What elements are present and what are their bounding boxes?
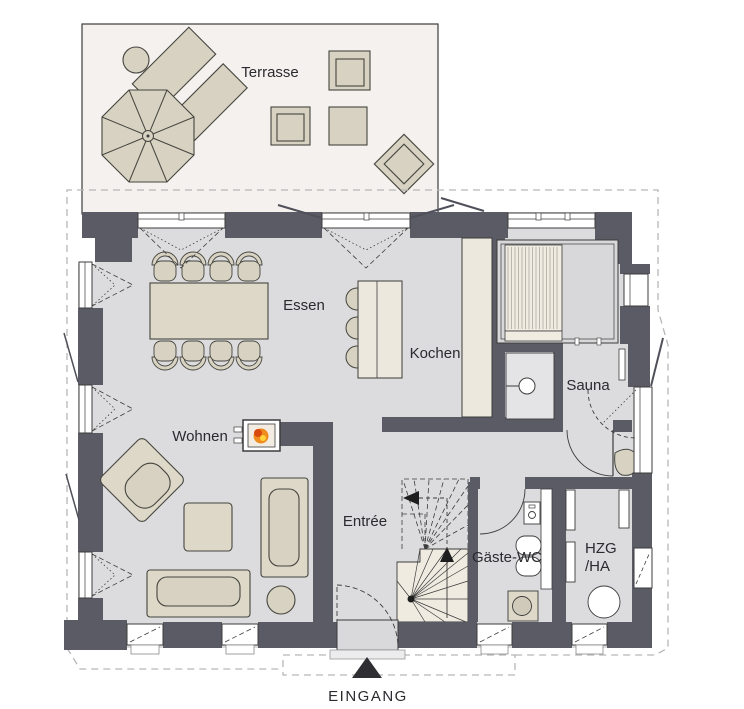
- entrance-step: [330, 650, 405, 659]
- window-bottom-2: [222, 624, 258, 654]
- window-utility-right: [634, 548, 652, 588]
- window-bottom-4: [572, 624, 607, 654]
- side-table: [267, 586, 295, 614]
- terrace-table: [329, 107, 367, 145]
- dining-table: [150, 283, 268, 339]
- entry-label: Entrée: [343, 513, 387, 530]
- terrace-area: Terrasse: [82, 24, 438, 214]
- shower-head-icon: [519, 378, 535, 394]
- entrance-label: EINGANG: [328, 688, 408, 705]
- floorplan-drawing: Terrasse: [0, 0, 744, 709]
- kitchen-island: [358, 281, 402, 378]
- parasol-icon: [102, 90, 194, 182]
- sofa-vertical: [261, 478, 308, 577]
- sauna-label: Sauna: [566, 377, 610, 394]
- sauna-cabin: [497, 240, 618, 345]
- window-sauna-right: [624, 274, 648, 306]
- terrace-chair: [329, 51, 370, 90]
- sauna-bench-step: [505, 331, 562, 341]
- window-top-2: [322, 213, 410, 228]
- window-bottom-1: [127, 624, 163, 654]
- shower: [506, 353, 554, 419]
- kitchen-label: Kochen: [410, 345, 461, 362]
- toilet: [508, 591, 538, 621]
- terrace-label: Terrasse: [241, 64, 299, 81]
- fire-icon: [254, 429, 269, 444]
- dining-label: Essen: [283, 297, 325, 314]
- window-left-2: [79, 385, 92, 433]
- kitchen-counter: [462, 238, 492, 417]
- guest-wc-label: Gäste-WC: [472, 549, 542, 566]
- floorplan-page: Terrasse: [0, 0, 744, 709]
- triangle-up-icon: [352, 657, 382, 678]
- door-right-exterior: [634, 387, 652, 473]
- sofa-horizontal: [147, 570, 250, 617]
- living-label: Wohnen: [172, 428, 228, 445]
- window-sauna-top: [508, 213, 595, 228]
- window-left-3: [79, 552, 92, 598]
- window-top-1: [138, 213, 225, 228]
- terrace-side-table: [123, 47, 149, 73]
- radiator: [619, 349, 625, 380]
- stair-newel-dot: [408, 596, 415, 603]
- window-left-1: [79, 262, 92, 308]
- terrace-chair: [271, 107, 310, 145]
- window-bottom-3: [477, 624, 512, 654]
- coffee-table: [184, 503, 232, 551]
- utility-label-line2: /HA: [585, 558, 610, 575]
- entrance-marker: EINGANG: [328, 657, 408, 705]
- utility-label-line1: HZG: [585, 540, 617, 557]
- wc-cabinet: [541, 489, 552, 589]
- boiler: [588, 586, 620, 618]
- wc-cistern: [524, 502, 540, 524]
